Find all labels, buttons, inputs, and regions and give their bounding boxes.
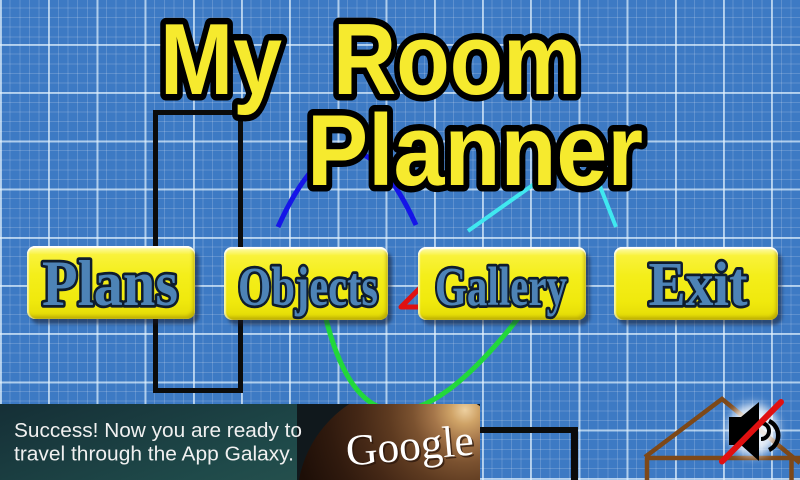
svg-text:travel through the App Galaxy.: travel through the App Galaxy.	[14, 443, 294, 466]
svg-text:Success! Now you are ready to: Success! Now you are ready to	[14, 419, 302, 442]
